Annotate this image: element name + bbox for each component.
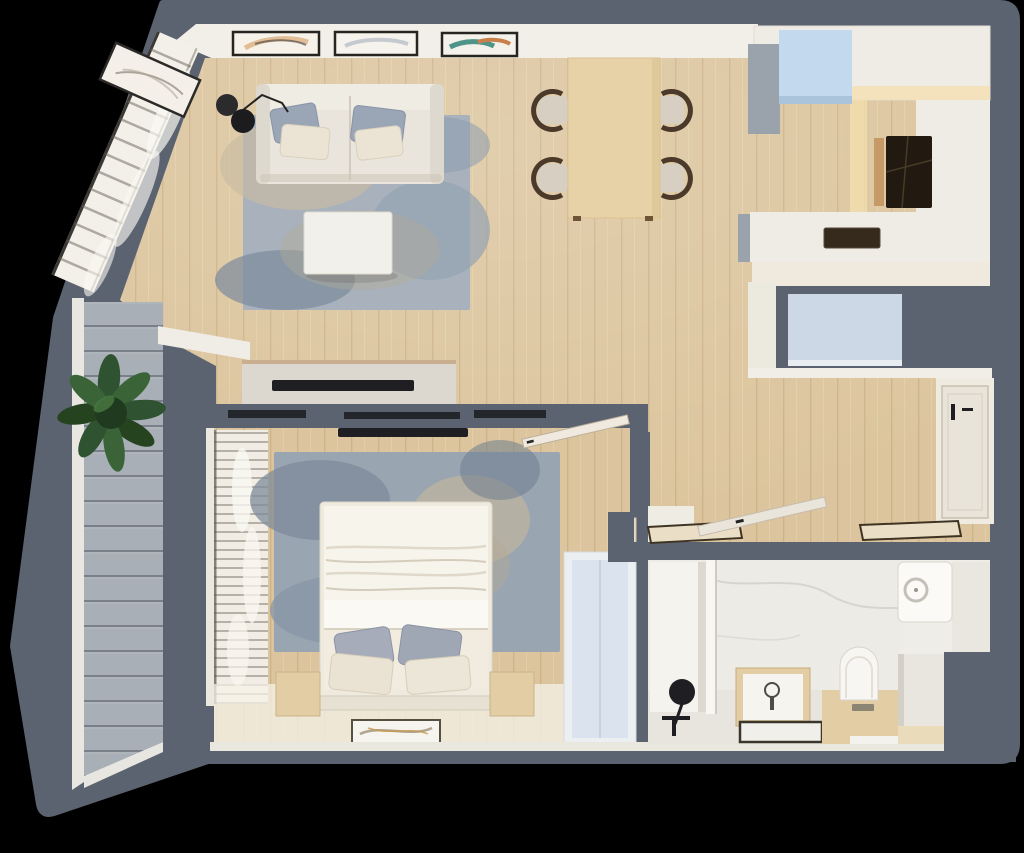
living-tv — [272, 380, 414, 391]
art-frame-2 — [335, 32, 417, 55]
balcony-deck — [84, 302, 163, 776]
marble-block — [898, 654, 944, 726]
nightstand-right — [490, 672, 534, 716]
faucet-stem — [770, 697, 774, 710]
floor-plan-render — [0, 0, 1024, 853]
entrance-door — [942, 386, 988, 518]
bathroom-bottom-trim — [648, 744, 944, 751]
hall-closet-top — [788, 294, 902, 366]
art-frame-1 — [233, 32, 319, 55]
shower-drain-mat — [740, 722, 822, 742]
flush-plate — [852, 704, 874, 711]
shower-valve — [672, 720, 676, 736]
vanity-sink — [736, 668, 810, 726]
wall-chunk — [608, 512, 634, 546]
trim-strip — [748, 368, 992, 378]
wall-dark-segment — [344, 412, 460, 419]
door-handle — [962, 408, 973, 411]
curtain-wisp — [243, 527, 261, 623]
floor-plan-stage — [0, 0, 1024, 853]
kitchen-sink — [824, 228, 880, 248]
nightstand-left — [276, 672, 320, 716]
bedroom-window-sill — [206, 428, 214, 706]
sofa-front-shadow — [260, 174, 442, 182]
shower-ridge — [706, 560, 716, 714]
tv-sideboard — [242, 360, 456, 404]
fridge-top — [779, 30, 852, 104]
wall-dark-segment — [474, 410, 546, 418]
bedroom-tv — [338, 428, 468, 437]
curtain-wisp — [227, 614, 249, 686]
cabinet-column — [748, 282, 778, 368]
cutting-board — [874, 138, 884, 206]
curtain-wisp — [232, 448, 252, 532]
foot-mat-art — [352, 720, 440, 744]
table-edge-shade — [652, 58, 660, 218]
divider-wall-bedroom — [212, 404, 648, 428]
bed-pillow-cream — [405, 655, 472, 694]
sofa-arm-right — [430, 84, 444, 184]
bed-headboard — [318, 696, 494, 710]
shower-valve — [662, 716, 690, 720]
cooktop — [886, 136, 932, 208]
closet-edge — [788, 360, 902, 366]
marble-shelf — [952, 562, 990, 654]
bedroom — [206, 415, 636, 746]
sideboard-edge — [242, 360, 456, 364]
cabinet-side — [738, 214, 752, 262]
hall-bath-wall — [608, 542, 1000, 562]
art-frame-3 — [442, 33, 517, 56]
washer-dot — [914, 588, 918, 592]
bed-pillow-cream — [328, 653, 393, 695]
table-leg — [645, 216, 653, 221]
cabinet-side — [748, 44, 780, 134]
shower-ridge-line — [715, 560, 717, 714]
sofa-pillow-cream — [280, 124, 331, 160]
wardrobe — [564, 552, 636, 746]
shower-head — [669, 679, 695, 705]
dining-chair — [534, 92, 568, 130]
table-leg — [573, 216, 581, 221]
door-handle — [951, 404, 955, 420]
fridge-edge — [779, 96, 852, 104]
balcony-rail-trim — [72, 298, 84, 790]
bed — [318, 502, 494, 710]
dining-chair — [534, 160, 568, 198]
bedroom-bottom-trim — [210, 742, 648, 751]
door-mat — [860, 521, 961, 540]
sofa — [256, 84, 444, 184]
dining-table — [568, 58, 660, 221]
coffee-table — [304, 212, 398, 283]
shower — [650, 560, 717, 736]
sofa-pillow-cream — [354, 125, 403, 160]
marble-block-shade — [898, 654, 904, 726]
lamp-shade — [231, 109, 255, 133]
bathroom-wall-notch — [944, 652, 1016, 762]
counter-face — [752, 262, 990, 286]
bench-strip — [898, 726, 944, 744]
wall-dark-segment — [228, 410, 306, 418]
bedroom-window-frame — [214, 430, 217, 704]
bathroom — [648, 560, 1016, 762]
